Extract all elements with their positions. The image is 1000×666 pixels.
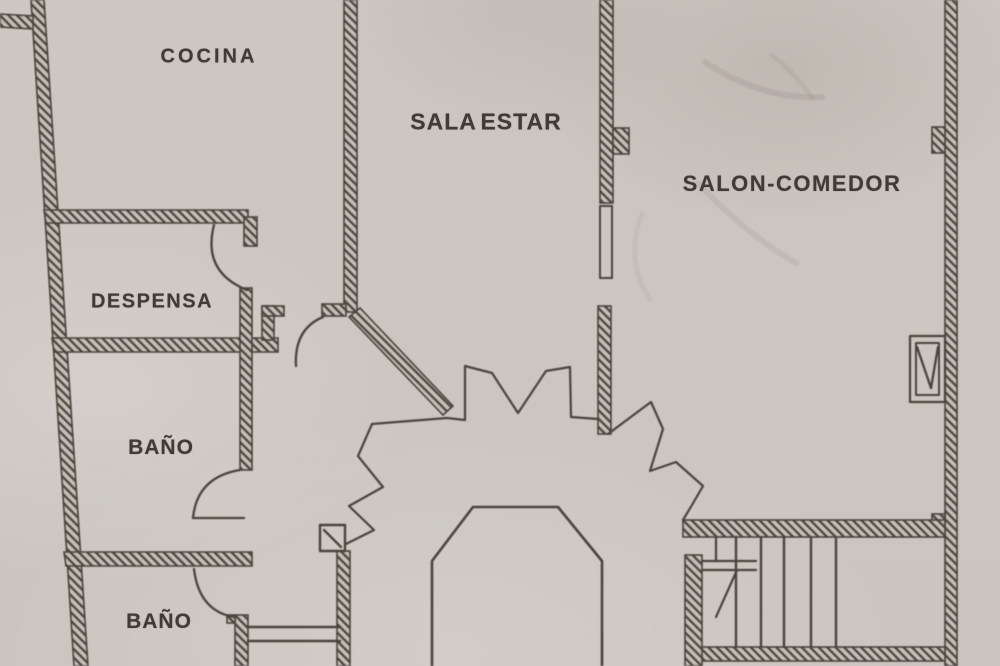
wall-bano1-bottom (64, 552, 252, 566)
wall-sala-salon-upper (600, 0, 613, 203)
wall-despensa-top (44, 210, 248, 223)
wall-stairs-bottom (700, 647, 945, 661)
wall-duct-stub (262, 306, 284, 316)
room-label-despensa: DESPENSA (91, 291, 213, 314)
despensa-door-jamb (244, 217, 257, 246)
door-arc-bano2 (194, 569, 234, 617)
floorplan-scan: COCINA SALA ESTAR SALON-COMEDOR DESPENSA… (0, 0, 1000, 666)
room-label-sala-estar: SALA ESTAR (410, 109, 561, 136)
room-label-bano-1: BAÑO (128, 436, 194, 460)
wall-notch-sala (613, 128, 629, 154)
wall-stairs-top (683, 520, 945, 537)
wall-despensa-bano-right (240, 288, 252, 470)
wall-bano2-right (235, 615, 248, 666)
door-arc-hall (296, 317, 323, 366)
window-sala (600, 206, 612, 278)
wall-cocina-sala (344, 0, 357, 312)
staircase-landing (702, 537, 756, 617)
stair-break-line (716, 570, 737, 617)
room-label-salon-comedor: SALON-COMEDOR (683, 171, 902, 197)
column-diagonal (324, 530, 341, 547)
exterior-wall-right (945, 0, 957, 666)
wall-sala-salon-lower (598, 306, 611, 434)
arch-opening (432, 507, 602, 666)
floorplan-drawing (0, 0, 1000, 666)
sunburst-outline (346, 366, 703, 544)
room-label-bano-2: BAÑO (126, 610, 192, 634)
wall-hall-door-jamb (322, 304, 346, 316)
door-arc-bano1 (193, 470, 240, 518)
wall-center-bottom (337, 551, 350, 666)
wall-notch-right (932, 127, 945, 153)
staircase-treads (736, 537, 836, 647)
door-arc-despensa (211, 225, 247, 290)
wall-stub-top-left (0, 14, 33, 29)
linework (193, 206, 945, 666)
wall-diagonal (349, 308, 453, 415)
fireplace-symbol (910, 336, 945, 402)
wall-stairs-left (685, 555, 702, 666)
room-label-cocina: COCINA (161, 46, 258, 69)
